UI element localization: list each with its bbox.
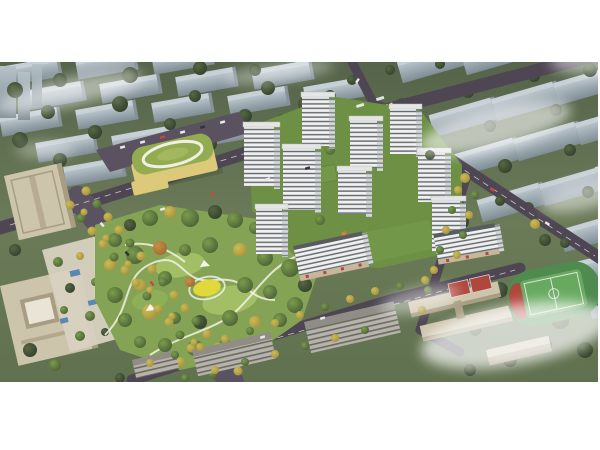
tower — [282, 144, 321, 213]
tower — [255, 204, 288, 257]
rendering-frame: Bird's-eye architectural rendering of a … — [0, 0, 600, 450]
aerial-render-canvas — [0, 0, 600, 450]
tower — [243, 122, 280, 189]
tower — [301, 92, 335, 149]
tower — [337, 166, 372, 217]
tower — [349, 116, 383, 171]
render-content — [0, 34, 600, 383]
